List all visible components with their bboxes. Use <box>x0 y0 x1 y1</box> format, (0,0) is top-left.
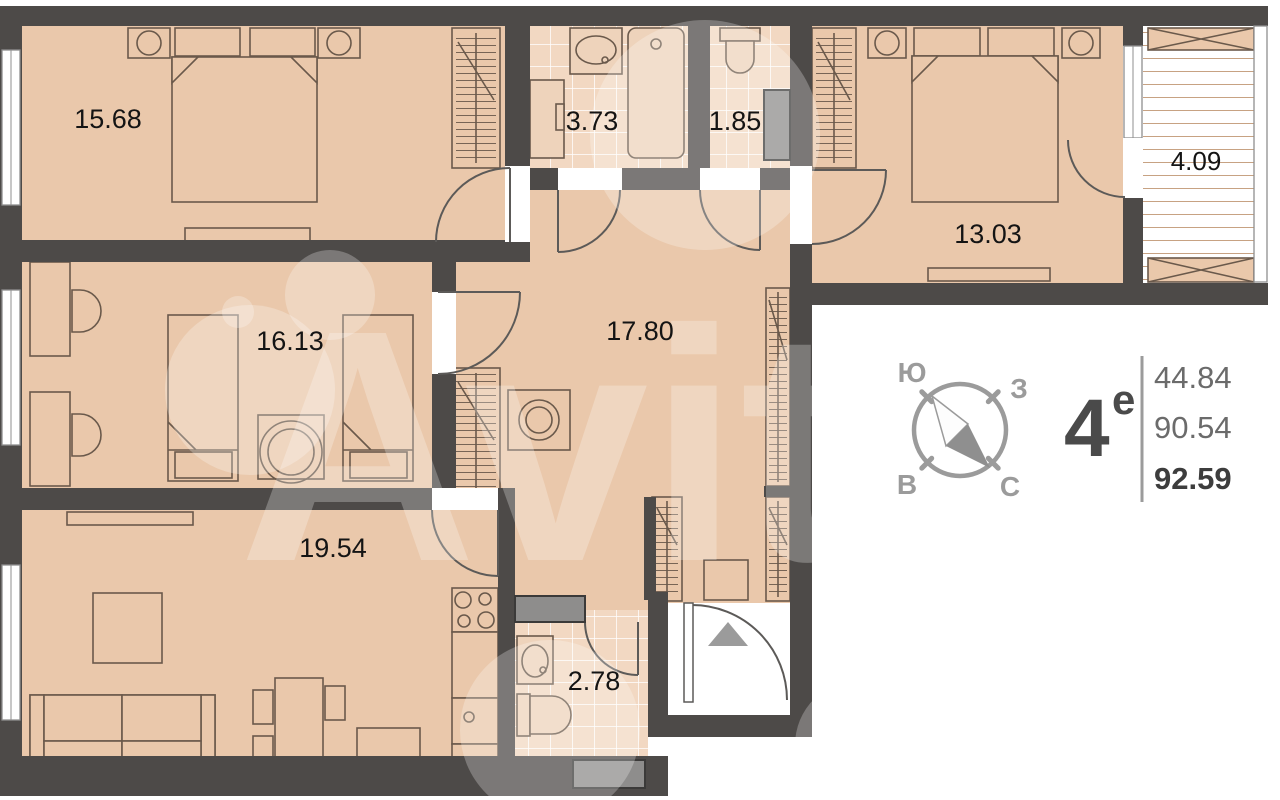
cabinet-handle <box>556 104 564 130</box>
sofa <box>30 695 215 757</box>
stat-living-area: 44.84 <box>1154 360 1232 395</box>
compass-south: Ю <box>898 357 927 388</box>
pillow <box>250 28 315 56</box>
desk <box>30 392 70 486</box>
label-bedroom-2: 13.03 <box>954 219 1022 249</box>
compass-east: В <box>897 469 917 500</box>
compass-west: З <box>1010 373 1028 404</box>
double-bed <box>172 57 317 202</box>
stat-floor-area: 90.54 <box>1154 410 1232 445</box>
floorplan-page: Avito 15.68 3.73 1.85 13.03 4.09 16.13 1… <box>0 0 1280 800</box>
pillow <box>988 28 1054 56</box>
label-balcony: 4.09 <box>1171 146 1222 176</box>
label-bathroom-1: 3.73 <box>566 106 619 136</box>
chair <box>253 690 273 724</box>
pillow <box>175 28 240 56</box>
balcony-glazing <box>1254 26 1267 282</box>
dining-table <box>275 678 323 758</box>
apartment-type-letter: е <box>1112 376 1135 423</box>
apartment-type-number: 4 <box>1064 383 1110 474</box>
side-table <box>357 728 420 758</box>
pillow <box>914 28 980 56</box>
label-bedroom-1: 15.68 <box>74 104 142 134</box>
nightstand <box>1062 28 1100 58</box>
stat-total-area: 92.59 <box>1154 461 1232 496</box>
outside-mask <box>648 737 812 800</box>
compass-north: С <box>1000 471 1020 502</box>
balcony-railing-bottom <box>1148 258 1254 282</box>
nightstand <box>318 28 360 58</box>
tv-stand <box>67 512 193 525</box>
floorplan-svg: Avito 15.68 3.73 1.85 13.03 4.09 16.13 1… <box>0 0 1280 800</box>
coffee-table <box>93 593 162 663</box>
label-kids-room: 16.13 <box>256 326 324 356</box>
double-bed <box>912 56 1058 202</box>
label-bathroom-2: 2.78 <box>568 666 621 696</box>
label-hallway: 17.80 <box>606 316 674 346</box>
balcony-railing-top <box>1148 28 1254 50</box>
desk <box>30 262 70 356</box>
dresser <box>185 228 310 241</box>
label-wc: 1.85 <box>709 106 762 136</box>
chair <box>325 686 345 720</box>
wardrobe <box>452 28 500 168</box>
label-living-kitchen: 19.54 <box>299 533 367 563</box>
nightstand <box>868 28 906 58</box>
nightstand <box>128 28 170 58</box>
